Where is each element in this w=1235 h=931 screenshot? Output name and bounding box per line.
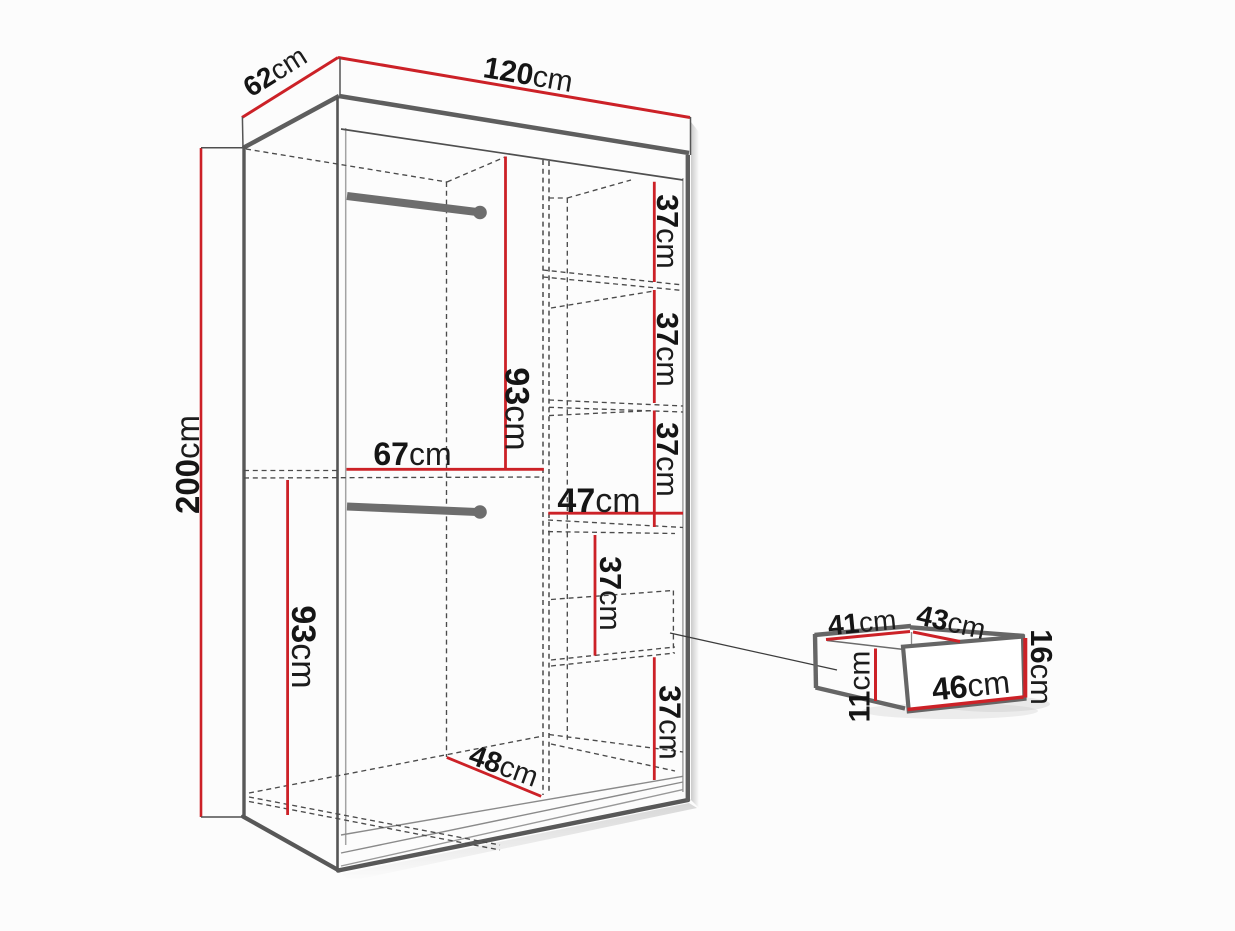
svg-text:37cm: 37cm [650, 312, 684, 387]
svg-text:37cm: 37cm [650, 422, 684, 497]
svg-text:93cm: 93cm [284, 605, 322, 688]
svg-text:37cm: 37cm [650, 194, 684, 269]
svg-text:11cm: 11cm [844, 651, 877, 723]
svg-text:37cm: 37cm [593, 556, 627, 631]
svg-text:41cm: 41cm [827, 604, 898, 641]
svg-text:37cm: 37cm [653, 685, 687, 760]
svg-text:67cm: 67cm [373, 436, 451, 472]
svg-text:47cm: 47cm [557, 482, 640, 520]
svg-text:16cm: 16cm [1024, 629, 1059, 705]
svg-text:93cm: 93cm [498, 367, 536, 450]
svg-text:200cm: 200cm [169, 415, 206, 514]
